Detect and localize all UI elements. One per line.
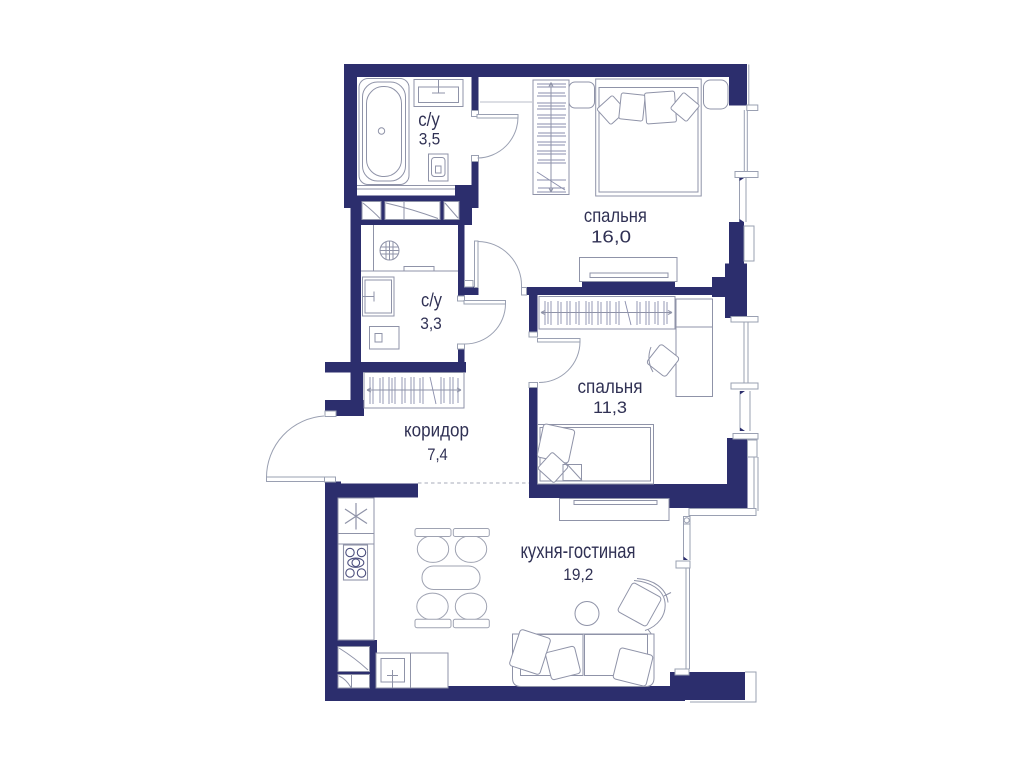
svg-text:коридор: коридор: [404, 420, 469, 442]
svg-text:11,3: 11,3: [593, 398, 627, 417]
svg-text:кухня-гостиная: кухня-гостиная: [521, 540, 636, 563]
svg-text:3,5: 3,5: [419, 131, 441, 149]
svg-text:7,4: 7,4: [427, 445, 448, 464]
svg-text:спальня: спальня: [584, 205, 647, 227]
svg-text:16,0: 16,0: [591, 227, 631, 247]
svg-text:с/у: с/у: [421, 290, 442, 312]
svg-text:с/у: с/у: [418, 109, 440, 131]
svg-text:3,3: 3,3: [420, 315, 442, 333]
svg-text:19,2: 19,2: [563, 565, 593, 584]
svg-text:спальня: спальня: [578, 376, 643, 398]
